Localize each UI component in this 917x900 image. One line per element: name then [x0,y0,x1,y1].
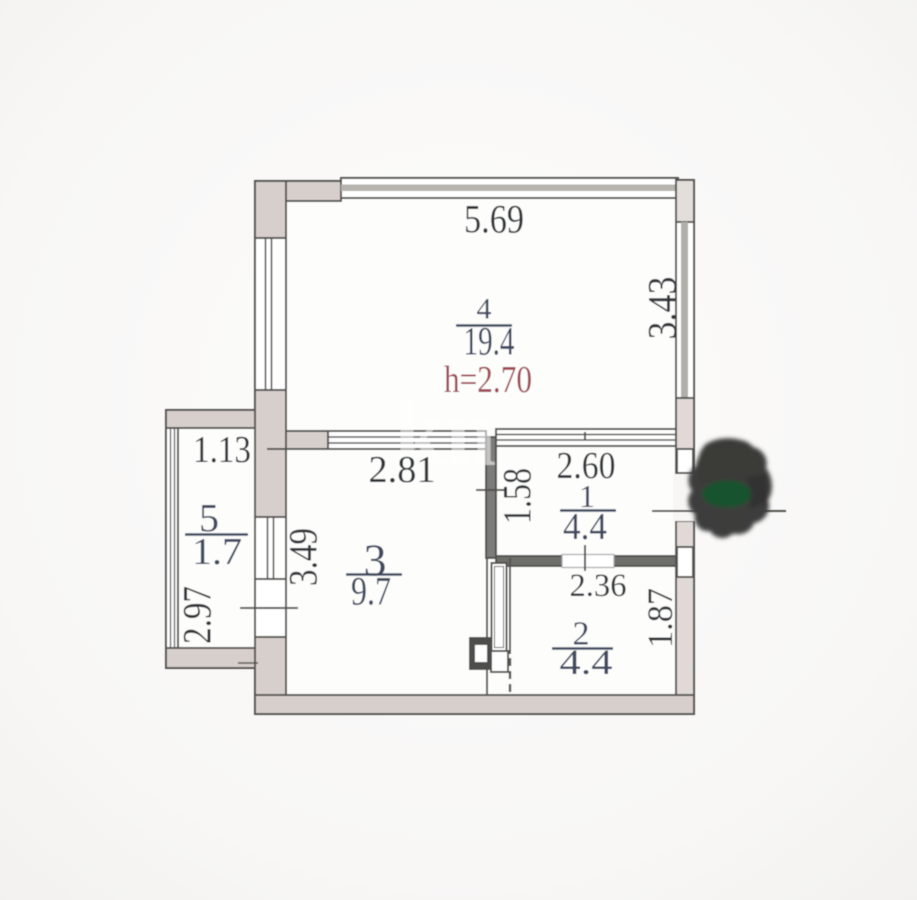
svg-text:1.58: 1.58 [495,468,540,524]
svg-text:5.69: 5.69 [464,197,524,242]
svg-text:h=2.70: h=2.70 [444,359,532,401]
svg-text:2.97: 2.97 [175,586,220,644]
svg-text:4.4: 4.4 [560,642,613,682]
svg-text:4.4: 4.4 [563,506,607,548]
svg-text:19.4: 19.4 [464,319,515,364]
svg-text:3.43: 3.43 [640,277,685,340]
svg-text:1.87: 1.87 [640,588,680,648]
svg-text:1.7: 1.7 [192,531,242,573]
svg-text:9.7: 9.7 [351,569,391,614]
svg-text:2.36: 2.36 [570,568,627,604]
svg-text:3.49: 3.49 [281,528,326,586]
svg-text:2.81: 2.81 [369,449,436,491]
svg-text:1.13: 1.13 [193,429,251,471]
